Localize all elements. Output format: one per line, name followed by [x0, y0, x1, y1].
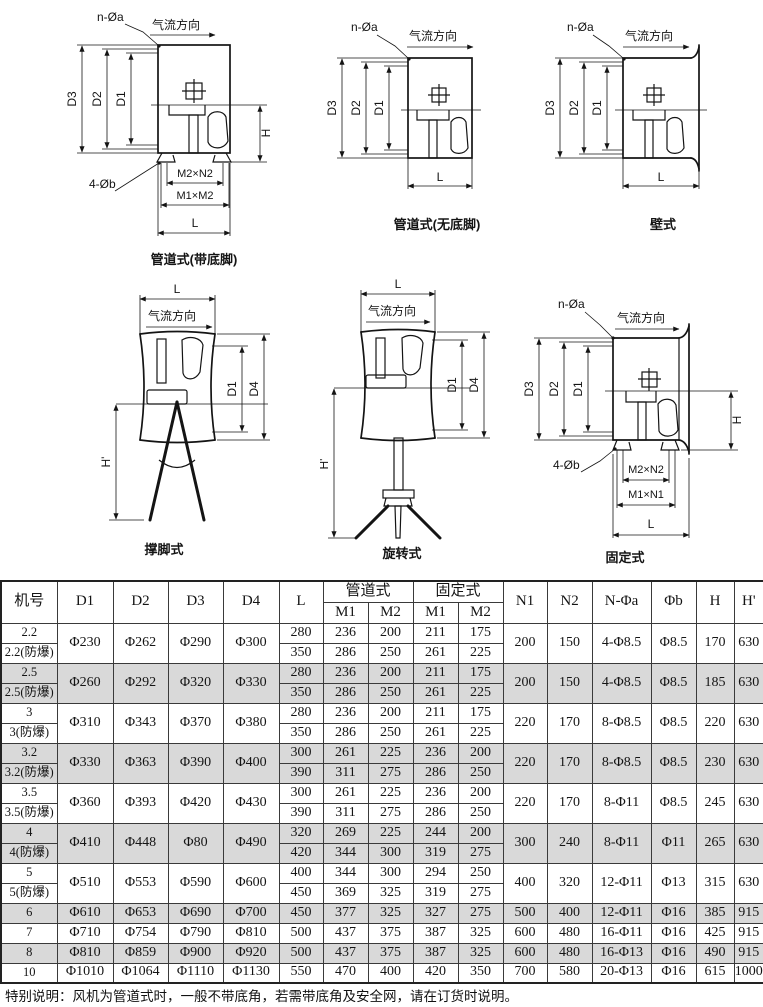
fan-housing [401, 58, 481, 158]
table-cell: 320 [279, 823, 323, 843]
table-cell: 300 [368, 863, 413, 883]
table-cell: 286 [413, 763, 458, 783]
table-cell: 450 [279, 903, 323, 923]
table-cell: 390 [279, 763, 323, 783]
table-cell: 400 [368, 963, 413, 983]
table-cell: 377 [323, 903, 368, 923]
table-cell: Φ510 [57, 863, 113, 903]
table-cell: 250 [368, 683, 413, 703]
table-cell: 375 [368, 923, 413, 943]
table-row: 10Φ1010Φ1064Φ1110Φ1130550470400420350700… [1, 963, 763, 983]
table-cell: 387 [413, 943, 458, 963]
table-cell: 400 [547, 903, 592, 923]
table-cell: Φ420 [168, 783, 223, 823]
table-cell: 170 [547, 783, 592, 823]
table-cell: 200 [368, 663, 413, 683]
table-cell: 315 [696, 863, 734, 903]
table-cell: Φ920 [223, 943, 279, 963]
dimension-lines: D3 D2 D1 L [545, 58, 699, 189]
hole-callout-n-oa: n-Øa [97, 10, 124, 24]
table-cell: Φ600 [223, 863, 279, 903]
table-cell: Φ410 [57, 823, 113, 863]
table-cell: 319 [413, 843, 458, 863]
table-cell: 250 [368, 643, 413, 663]
fan-barrel [116, 332, 268, 443]
column-header-fixed-m1: M1 [413, 602, 458, 623]
dim-d1: D1 [590, 100, 604, 116]
fan-housing [605, 324, 738, 454]
table-cell: Φ1130 [223, 963, 279, 983]
airflow-label: 气流方向 [617, 310, 665, 325]
dim-d3: D3 [325, 100, 339, 116]
table-cell: 300 [279, 783, 323, 803]
table-cell: 236 [413, 743, 458, 763]
table-cell: 280 [279, 703, 323, 723]
dim-d1: D1 [114, 91, 128, 107]
table-cell: 420 [279, 843, 323, 863]
table-cell: 3.2(防爆) [1, 763, 57, 783]
table-cell: Φ900 [168, 943, 223, 963]
column-header-fixed-group: 固定式 [413, 581, 503, 602]
diagram-caption: 壁式 [650, 217, 676, 232]
airflow-label: 气流方向 [368, 303, 416, 318]
table-cell: 16-Φ13 [592, 943, 651, 963]
table-cell: Φ290 [168, 623, 223, 663]
table-cell: 200 [503, 663, 547, 703]
dim-l: L [658, 170, 665, 184]
table-cell: Φ448 [113, 823, 168, 863]
table-cell: Φ380 [223, 703, 279, 743]
table-cell: 630 [734, 663, 763, 703]
table-cell: Φ360 [57, 783, 113, 823]
table-cell: 225 [368, 823, 413, 843]
table-cell: 300 [368, 843, 413, 863]
table-cell: 4-Φ8.5 [592, 663, 651, 703]
table-cell: 175 [458, 703, 503, 723]
table-cell: 250 [458, 803, 503, 823]
table-cell: Φ754 [113, 923, 168, 943]
table-cell: Φ1110 [168, 963, 223, 983]
table-cell: 615 [696, 963, 734, 983]
swivel-stand [356, 438, 440, 538]
table-cell: 4-Φ8.5 [592, 623, 651, 663]
table-cell: 261 [323, 743, 368, 763]
table-cell: 350 [279, 723, 323, 743]
dim-d4: D4 [467, 377, 481, 393]
table-cell: Φ330 [223, 663, 279, 703]
table-cell: 261 [323, 783, 368, 803]
dimension-lines: D1 D4 H' [320, 332, 490, 538]
catalog-page: 气流方向 n-Øa D3 D2 D1 H [0, 0, 763, 1007]
dim-d4: D4 [247, 381, 261, 397]
column-header-duct-m2: M2 [368, 602, 413, 623]
table-cell: 245 [696, 783, 734, 823]
table-cell: Φ490 [223, 823, 279, 863]
dim-h: H [259, 129, 273, 138]
table-cell: 286 [323, 723, 368, 743]
table-cell: 250 [458, 763, 503, 783]
table-cell: Φ230 [57, 623, 113, 663]
table-cell: 12-Φ11 [592, 863, 651, 903]
table-cell: 420 [413, 963, 458, 983]
table-cell: 275 [458, 843, 503, 863]
table-cell: 3 [1, 703, 57, 723]
hole-callout-n-oa: n-Øa [567, 20, 594, 34]
table-cell: 387 [413, 923, 458, 943]
table-cell: 700 [503, 963, 547, 983]
column-header-duct-m1: M1 [323, 602, 368, 623]
table-cell: 236 [323, 623, 368, 643]
table-cell: 600 [503, 943, 547, 963]
table-cell: 3.2 [1, 743, 57, 763]
table-row: 7Φ710Φ754Φ790Φ81050043737538732560048016… [1, 923, 763, 943]
table-cell: 630 [734, 743, 763, 783]
table-row: 6Φ610Φ653Φ690Φ70045037732532727550040012… [1, 903, 763, 923]
column-header-n2: N2 [547, 581, 592, 623]
table-cell: 5 [1, 863, 57, 883]
table-cell: 10 [1, 963, 57, 983]
table-cell: Φ810 [57, 943, 113, 963]
table-cell: 500 [503, 903, 547, 923]
table-cell: 400 [279, 863, 323, 883]
table-cell: 1000 [734, 963, 763, 983]
table-cell: 269 [323, 823, 368, 843]
table-cell: Φ8.5 [651, 703, 696, 743]
table-cell: 220 [503, 703, 547, 743]
dim-d1: D1 [225, 381, 239, 397]
table-cell: 236 [323, 703, 368, 723]
table-cell: Φ16 [651, 923, 696, 943]
table-cell: 480 [547, 943, 592, 963]
table-cell: 220 [503, 743, 547, 783]
diagram-caption: 管道式(带底脚) [151, 252, 238, 267]
table-cell: 230 [696, 743, 734, 783]
table-cell: 150 [547, 663, 592, 703]
hole-callout-n-oa: n-Øa [351, 20, 378, 34]
table-cell: 344 [323, 843, 368, 863]
dim-d1: D1 [372, 100, 386, 116]
table-cell: 200 [458, 783, 503, 803]
table-cell: 175 [458, 663, 503, 683]
table-cell: 369 [323, 883, 368, 903]
special-note: 特别说明：风机为管道式时，一般不带底角，若需带底角及安全网，请在订货时说明。 [5, 985, 518, 1005]
fan-housing [615, 45, 707, 171]
table-cell: Φ16 [651, 943, 696, 963]
table-cell: 630 [734, 623, 763, 663]
table-cell: 311 [323, 763, 368, 783]
table-cell: Φ430 [223, 783, 279, 823]
table-cell: 211 [413, 703, 458, 723]
dim-d2: D2 [547, 381, 561, 397]
table-cell: 325 [458, 943, 503, 963]
table-cell: 286 [413, 803, 458, 823]
table-cell: 175 [458, 623, 503, 643]
table-cell: 5(防爆) [1, 883, 57, 903]
table-row: 4Φ410Φ448Φ80Φ4903202692252442003002408-Φ… [1, 823, 763, 843]
table-cell: 470 [323, 963, 368, 983]
column-header-d4: D4 [223, 581, 279, 623]
table-cell: 500 [279, 923, 323, 943]
table-cell: 400 [503, 863, 547, 903]
table-cell: 225 [368, 743, 413, 763]
diagram-support-leg: L 气流方向 D1 D4 H' 撑脚式 [100, 282, 330, 567]
column-header-phi-b: Φb [651, 581, 696, 623]
table-cell: 325 [458, 923, 503, 943]
table-cell: Φ553 [113, 863, 168, 903]
diagram-caption: 固定式 [605, 550, 644, 565]
table-cell: 275 [368, 803, 413, 823]
table-cell: 250 [458, 863, 503, 883]
column-header-duct-group: 管道式 [323, 581, 413, 602]
table-cell: Φ363 [113, 743, 168, 783]
dim-l: L [648, 517, 655, 531]
table-cell: 550 [279, 963, 323, 983]
column-header-d1: D1 [57, 581, 113, 623]
table-cell: 320 [547, 863, 592, 903]
table-cell: Φ400 [223, 743, 279, 783]
hole-callout-4-ob: 4-Øb [553, 458, 580, 472]
table-cell: 490 [696, 943, 734, 963]
column-header-l: L [279, 581, 323, 623]
table-cell: 225 [458, 723, 503, 743]
dim-d2: D2 [90, 91, 104, 107]
table-cell: 185 [696, 663, 734, 703]
table-cell: 200 [458, 823, 503, 843]
table-cell: 286 [323, 683, 368, 703]
table-cell: Φ300 [223, 623, 279, 663]
table-cell: Φ1010 [57, 963, 113, 983]
table-cell: Φ262 [113, 623, 168, 663]
table-cell: 200 [458, 743, 503, 763]
table-cell: 2.2 [1, 623, 57, 643]
table-cell: Φ8.5 [651, 623, 696, 663]
table-cell: 6 [1, 903, 57, 923]
table-cell: Φ810 [223, 923, 279, 943]
table-cell: 350 [458, 963, 503, 983]
hole-callout-4-ob: 4-Øb [89, 177, 116, 191]
table-cell: Φ690 [168, 903, 223, 923]
table-cell: 4(防爆) [1, 843, 57, 863]
dim-d2: D2 [567, 100, 581, 116]
table-cell: Φ790 [168, 923, 223, 943]
column-header-d2: D2 [113, 581, 168, 623]
dimension-lines: D3 D2 D1 H M2×N2 M1×M2 L 4-Øb [65, 45, 273, 236]
diagram-swivel-type: L 气流方向 D1 D4 H' [320, 278, 530, 568]
table-cell: 250 [368, 723, 413, 743]
table-row: 2.2Φ230Φ262Φ290Φ300280236200211175200150… [1, 623, 763, 643]
table-cell: 8-Φ11 [592, 823, 651, 863]
airflow-label: 气流方向 [152, 17, 200, 32]
dim-d3: D3 [545, 100, 557, 116]
dim-h: H [730, 416, 744, 425]
table-cell: 390 [279, 803, 323, 823]
table-cell: Φ653 [113, 903, 168, 923]
spec-table: 机号 D1 D2 D3 D4 L 管道式 固定式 N1 N2 N-Φa Φb H… [0, 580, 763, 984]
table-cell: Φ610 [57, 903, 113, 923]
table-cell: 630 [734, 823, 763, 863]
column-header-h-prime: H' [734, 581, 763, 623]
table-cell: 244 [413, 823, 458, 843]
table-cell: 275 [368, 763, 413, 783]
table-cell: 8 [1, 943, 57, 963]
dim-l: L [437, 170, 444, 184]
hole-callout-n-oa: n-Øa [558, 297, 585, 311]
table-row: 5Φ510Φ553Φ590Φ60040034430029425040032012… [1, 863, 763, 883]
diagram-wall-type: 气流方向 n-Øa D3 D2 D1 L [545, 18, 763, 238]
table-cell: 150 [547, 623, 592, 663]
table-cell: 261 [413, 643, 458, 663]
table-cell: Φ859 [113, 943, 168, 963]
dim-l: L [395, 278, 402, 291]
table-cell: 300 [503, 823, 547, 863]
table-cell: 280 [279, 663, 323, 683]
dim-m1m2: M1×M2 [177, 190, 214, 202]
table-cell: 200 [503, 623, 547, 663]
table-cell: Φ16 [651, 963, 696, 983]
column-header-d3: D3 [168, 581, 223, 623]
airflow-label: 气流方向 [409, 28, 457, 43]
table-cell: 580 [547, 963, 592, 983]
table-cell: 600 [503, 923, 547, 943]
table-cell: 220 [503, 783, 547, 823]
table-cell: 437 [323, 923, 368, 943]
table-row: 2.5Φ260Φ292Φ320Φ330280236200211175200150… [1, 663, 763, 683]
table-cell: 170 [696, 623, 734, 663]
dim-d1: D1 [445, 377, 459, 393]
dim-h-prime: H' [320, 459, 331, 470]
table-cell: 8-Φ8.5 [592, 743, 651, 783]
table-cell: Φ13 [651, 863, 696, 903]
table-cell: Φ1064 [113, 963, 168, 983]
dimension-lines: D1 D4 H' [100, 334, 270, 520]
table-cell: 200 [368, 703, 413, 723]
fan-housing [151, 45, 267, 162]
table-cell: 8-Φ8.5 [592, 703, 651, 743]
table-cell: Φ320 [168, 663, 223, 703]
dim-h-prime: H' [100, 457, 113, 468]
table-cell: Φ343 [113, 703, 168, 743]
spec-table-body: 2.2Φ230Φ262Φ290Φ300280236200211175200150… [1, 623, 763, 983]
table-cell: Φ292 [113, 663, 168, 703]
table-cell: 425 [696, 923, 734, 943]
table-cell: Φ370 [168, 703, 223, 743]
table-cell: 261 [413, 683, 458, 703]
table-cell: Φ390 [168, 743, 223, 783]
table-cell: 211 [413, 663, 458, 683]
table-cell: Φ700 [223, 903, 279, 923]
table-cell: 437 [323, 943, 368, 963]
dimension-lines: D3 D2 D1 H 4-Øb M2×N2 M1×N1 L [522, 338, 744, 538]
column-header-model: 机号 [1, 581, 57, 623]
table-cell: Φ393 [113, 783, 168, 823]
table-row: 3Φ310Φ343Φ370Φ3802802362002111752201708-… [1, 703, 763, 723]
diagram-duct-with-feet: 气流方向 n-Øa D3 D2 D1 H [55, 5, 305, 273]
dim-m2n2: M2×N2 [628, 464, 664, 476]
table-row: 3.5Φ360Φ393Φ420Φ430300261225236200220170… [1, 783, 763, 803]
table-cell: Φ8.5 [651, 743, 696, 783]
airflow-label: 气流方向 [625, 28, 673, 43]
diagram-duct-no-feet: 气流方向 n-Øa D3 D2 D1 L 管道式(无底脚) [325, 18, 545, 238]
table-cell: Φ16 [651, 903, 696, 923]
table-cell: 3.5(防爆) [1, 803, 57, 823]
table-cell: Φ8.5 [651, 783, 696, 823]
table-cell: 915 [734, 923, 763, 943]
dim-d1: D1 [571, 381, 585, 397]
airflow-label: 气流方向 [148, 308, 196, 323]
column-header-h: H [696, 581, 734, 623]
table-cell: 325 [368, 883, 413, 903]
table-cell: 480 [547, 923, 592, 943]
table-cell: 236 [413, 783, 458, 803]
table-cell: 236 [323, 663, 368, 683]
table-cell: 275 [458, 883, 503, 903]
dim-d2: D2 [349, 100, 363, 116]
table-cell: 240 [547, 823, 592, 863]
table-cell: 630 [734, 703, 763, 743]
table-cell: 170 [547, 703, 592, 743]
table-cell: 294 [413, 863, 458, 883]
table-cell: Φ11 [651, 823, 696, 863]
dim-l: L [174, 282, 181, 296]
table-cell: 344 [323, 863, 368, 883]
table-cell: 630 [734, 863, 763, 903]
table-cell: Φ80 [168, 823, 223, 863]
table-cell: 4 [1, 823, 57, 843]
table-cell: 16-Φ11 [592, 923, 651, 943]
table-cell: 311 [323, 803, 368, 823]
column-header-n-phi-a: N-Φa [592, 581, 651, 623]
table-cell: 2.5(防爆) [1, 683, 57, 703]
table-cell: 220 [696, 703, 734, 743]
table-cell: 3.5 [1, 783, 57, 803]
table-cell: 280 [279, 623, 323, 643]
dim-d3: D3 [522, 381, 536, 397]
diagram-caption: 管道式(无底脚) [394, 217, 481, 232]
table-cell: 200 [368, 623, 413, 643]
table-cell: 319 [413, 883, 458, 903]
table-cell: 325 [368, 903, 413, 923]
table-cell: 12-Φ11 [592, 903, 651, 923]
table-cell: Φ8.5 [651, 663, 696, 703]
table-cell: Φ590 [168, 863, 223, 903]
table-cell: 225 [458, 683, 503, 703]
table-cell: 2.2(防爆) [1, 643, 57, 663]
table-cell: 375 [368, 943, 413, 963]
table-cell: 211 [413, 623, 458, 643]
dim-d3: D3 [65, 91, 79, 107]
table-cell: Φ710 [57, 923, 113, 943]
table-cell: 350 [279, 683, 323, 703]
table-cell: 300 [279, 743, 323, 763]
table-cell: 915 [734, 943, 763, 963]
table-cell: Φ260 [57, 663, 113, 703]
table-row: 8Φ810Φ859Φ900Φ92050043737538732560048016… [1, 943, 763, 963]
diagram-caption: 撑脚式 [144, 542, 183, 557]
table-cell: 3(防爆) [1, 723, 57, 743]
table-cell: 630 [734, 783, 763, 823]
dim-m2n2: M2×N2 [177, 168, 213, 180]
dim-l: L [192, 216, 199, 230]
table-cell: 20-Φ13 [592, 963, 651, 983]
table-cell: 286 [323, 643, 368, 663]
table-cell: 225 [458, 643, 503, 663]
table-cell: 275 [458, 903, 503, 923]
table-cell: 350 [279, 643, 323, 663]
table-cell: 385 [696, 903, 734, 923]
dimension-lines: D3 D2 D1 L [325, 58, 472, 189]
table-cell: 500 [279, 943, 323, 963]
table-cell: 225 [368, 783, 413, 803]
